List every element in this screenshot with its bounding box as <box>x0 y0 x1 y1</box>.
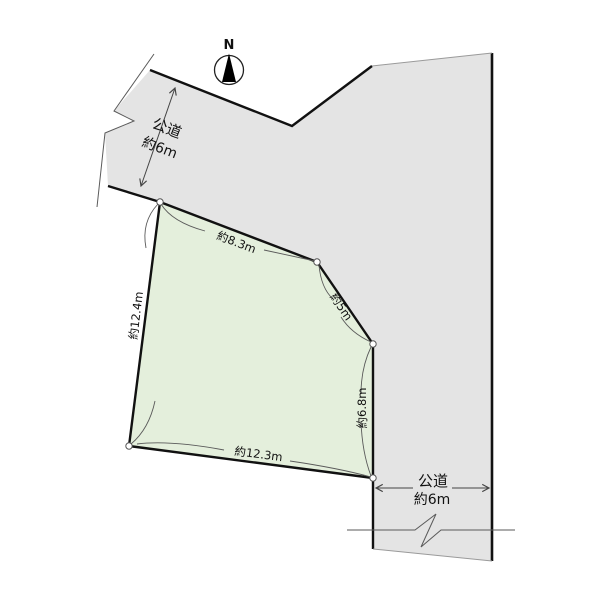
land-plot-diagram: N 約8.3m 約5m 約6.8m 約12.3m 約12.4m 公道 約6m 公… <box>0 0 600 600</box>
dim-label-right-edge: 約6.8m <box>355 388 369 429</box>
north-label: N <box>224 38 235 53</box>
boundary-point <box>157 199 163 205</box>
plot-svg: N 約8.3m 約5m 約6.8m 約12.3m 約12.4m 公道 約6m 公… <box>0 0 600 600</box>
north-compass: N <box>215 38 244 85</box>
boundary-point <box>314 259 320 265</box>
road-bottom-name: 公道 <box>418 472 448 490</box>
road-bottom-width: 約6m <box>414 492 451 508</box>
boundary-point <box>370 475 376 481</box>
boundary-point <box>370 341 376 347</box>
boundary-point <box>126 443 132 449</box>
